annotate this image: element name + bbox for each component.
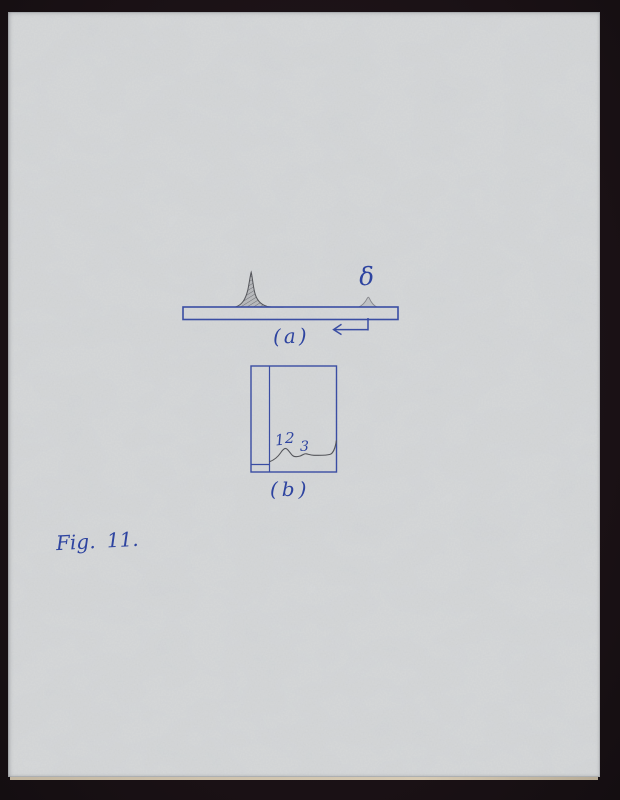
scan-background: δ (a) 1 2 3 (b) Fig. 11. bbox=[0, 0, 620, 800]
delta-label: δ bbox=[358, 264, 374, 290]
figure-caption: Fig. 11. bbox=[56, 529, 140, 553]
direction-arrow bbox=[334, 318, 368, 335]
spot-label-3: 3 bbox=[300, 440, 309, 454]
figure-b-drawing bbox=[251, 366, 337, 472]
figure-a-label: (a) bbox=[273, 325, 310, 346]
figure-b-label: (b) bbox=[270, 479, 310, 499]
spot-label-1: 1 bbox=[274, 433, 285, 449]
delta-spot-peak bbox=[359, 297, 378, 307]
spot-label-2: 2 bbox=[285, 431, 295, 446]
main-spot-peak bbox=[236, 272, 284, 307]
plate-bar bbox=[183, 307, 398, 320]
figure-drawing bbox=[0, 0, 620, 800]
